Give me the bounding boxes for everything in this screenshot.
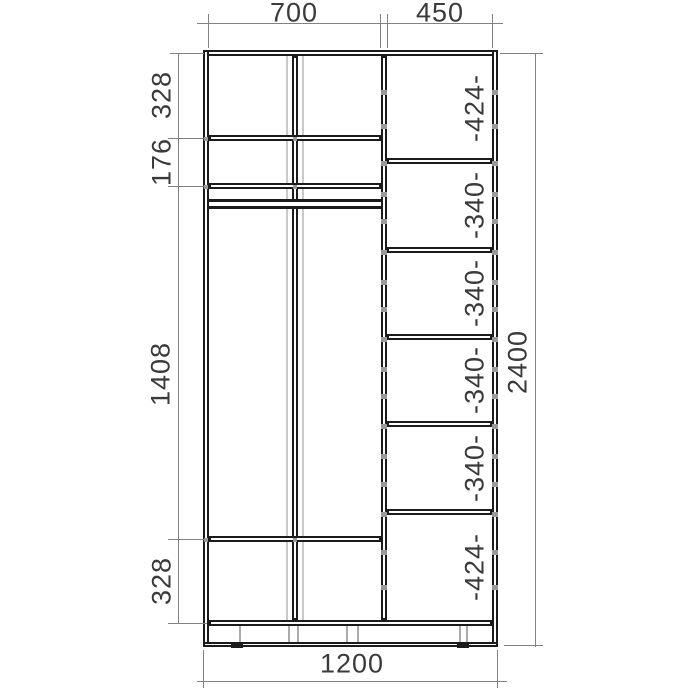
dim-label-328-bottom: 328: [149, 557, 176, 605]
screw-mark: [293, 185, 297, 189]
bottom-panel: [209, 620, 492, 626]
screw-mark: [381, 367, 387, 372]
right-shelf-1: [387, 158, 492, 164]
foot-right: [457, 642, 469, 648]
extension-left-shelf2: [168, 186, 207, 187]
screw-mark: [492, 90, 498, 95]
screw-mark: [381, 337, 387, 342]
screw-mark: [492, 337, 498, 342]
screw-mark: [492, 124, 498, 129]
screw-mark: [204, 137, 208, 141]
dim-label-340-2: -340-: [462, 259, 489, 327]
extension-bottom-left: [203, 650, 204, 688]
extension-top-mid-2: [387, 14, 388, 48]
screw-mark: [204, 185, 208, 189]
dim-label-424-top: -424-: [462, 74, 489, 142]
screw-mark: [293, 538, 297, 542]
extension-top-right: [492, 14, 493, 48]
right-shelf-3: [387, 334, 492, 340]
screw-mark: [492, 394, 498, 399]
plinth-support: [459, 626, 461, 642]
screw-mark: [492, 250, 498, 255]
extension-left-shelf3: [168, 539, 207, 540]
dim-label-340-1: -340-: [462, 171, 489, 239]
screw-mark: [381, 161, 387, 166]
plinth-support: [346, 626, 348, 642]
dim-label-2400: 2400: [505, 330, 532, 394]
hanging-rod: [209, 199, 381, 209]
screw-mark: [492, 280, 498, 285]
screw-mark: [492, 161, 498, 166]
screw-mark: [381, 454, 387, 459]
plinth-support: [466, 626, 468, 642]
screw-mark: [381, 192, 387, 197]
dim-label-424-bottom: -424-: [462, 533, 489, 601]
screw-mark: [492, 512, 498, 517]
screw-mark: [492, 367, 498, 372]
top-panel: [203, 50, 498, 56]
extension-bottom-right: [497, 650, 498, 688]
screw-mark: [381, 482, 387, 487]
screw-mark: [204, 538, 208, 542]
screw-mark: [492, 219, 498, 224]
right-wall: [492, 50, 498, 647]
screw-mark: [381, 585, 387, 590]
screw-mark: [381, 424, 387, 429]
foot-left: [231, 642, 243, 648]
screw-mark: [492, 192, 498, 197]
dim-label-176: 176: [149, 138, 176, 186]
right-shelf-2: [387, 247, 492, 253]
dim-label-328-top: 328: [149, 71, 176, 119]
screw-mark: [492, 482, 498, 487]
screw-mark: [381, 280, 387, 285]
screw-mark: [381, 394, 387, 399]
screw-mark: [293, 137, 297, 141]
dim-line-bottom: [197, 681, 507, 682]
plinth-support: [288, 626, 290, 642]
extension-left-top: [170, 53, 204, 54]
plinth-support: [357, 626, 359, 642]
dim-label-700: 700: [270, 0, 318, 27]
dim-label-1408: 1408: [148, 342, 175, 406]
dim-label-450: 450: [416, 0, 464, 27]
plinth-base: [203, 642, 498, 647]
extension-top-mid-1: [380, 14, 381, 48]
extension-right-top: [500, 53, 543, 54]
screw-mark: [381, 512, 387, 517]
dim-label-340-3: -340-: [462, 346, 489, 414]
screw-mark: [492, 585, 498, 590]
screw-mark: [381, 307, 387, 312]
plinth-support: [239, 626, 241, 642]
screw-mark: [492, 454, 498, 459]
extension-left-bottom: [168, 623, 207, 624]
screw-mark: [381, 219, 387, 224]
screw-mark: [492, 550, 498, 555]
dim-label-340-4: -340-: [462, 434, 489, 502]
extension-top-left: [208, 14, 209, 48]
screw-mark: [381, 124, 387, 129]
screw-mark: [381, 550, 387, 555]
wardrobe-dimension-drawing: 700 450 328 176 1408 328 -424- -340- -34…: [0, 0, 700, 700]
right-shelf-5: [387, 509, 492, 515]
plinth-support: [297, 626, 299, 642]
dim-line-right: [535, 53, 536, 647]
screw-mark: [492, 424, 498, 429]
right-shelf-4: [387, 421, 492, 427]
screw-mark: [381, 90, 387, 95]
extension-right-bottom: [504, 645, 543, 646]
screw-mark: [492, 307, 498, 312]
screw-mark: [381, 250, 387, 255]
dim-label-1200: 1200: [320, 651, 384, 678]
